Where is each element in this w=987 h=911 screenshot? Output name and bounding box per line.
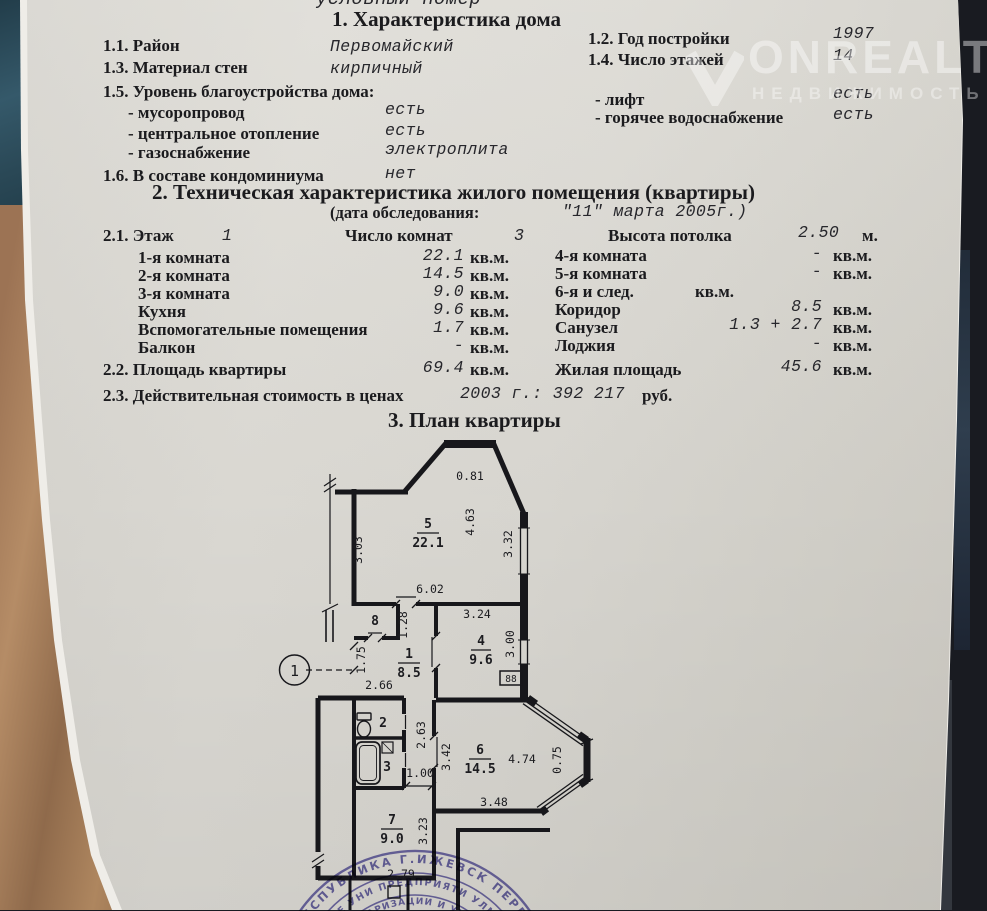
dim-1-28: 1.28 <box>396 611 410 639</box>
dim-3-32: 3.32 <box>501 530 515 558</box>
room2-value: 14.5 <box>372 264 464 283</box>
dim-6-02: 6.02 <box>416 582 444 596</box>
dim-3-03: 3.03 <box>351 536 365 564</box>
corridor-value: 8.5 <box>726 297 822 316</box>
radiator-label: 88 <box>505 674 517 685</box>
watermark-brand: ONREALT <box>748 30 987 84</box>
room1-number: 1 <box>405 647 413 662</box>
floor-value: 1 <box>222 226 232 245</box>
room1-label: 1-я комната <box>138 248 230 268</box>
room5-area: 22.1 <box>412 536 443 551</box>
room6plus-label: 6-я и след. <box>555 282 634 302</box>
field-walls-value: кирпичный <box>330 59 423 78</box>
ceiling-unit: м. <box>862 226 878 246</box>
living-area-label: Жилая площадь <box>555 360 681 380</box>
room1-unit: кв.м. <box>470 248 509 268</box>
kitchen-unit: кв.м. <box>470 302 509 322</box>
kitchen-value: 9.6 <box>372 300 464 319</box>
room5-label: 5-я комната <box>555 264 647 284</box>
room6-area: 14.5 <box>464 762 495 777</box>
field-chute-value: есть <box>385 100 426 119</box>
total-area-label: 2.2. Площадь квартиры <box>103 360 286 380</box>
dim-3-00: 3.00 <box>503 630 517 658</box>
watermark: ONREALT НЕДВИЖИМОСТЬ <box>686 22 986 112</box>
room4-area: 9.6 <box>469 653 493 668</box>
room2-number: 2 <box>379 716 387 731</box>
field-district-label: 1.1. Район <box>103 36 180 56</box>
aux-label: Вспомогательные помещения <box>138 320 368 340</box>
room4-label: 4-я комната <box>555 246 647 266</box>
total-area-unit: кв.м. <box>470 360 509 380</box>
field-heating-value: есть <box>385 121 426 140</box>
cost-unit: руб. <box>642 386 672 406</box>
room4-number: 4 <box>477 634 485 649</box>
field-amenities-label: 1.5. Уровень благоустройства дома: <box>103 82 374 102</box>
corridor-label: Коридор <box>555 300 621 320</box>
room3-number: 3 <box>383 760 391 775</box>
toilet-bowl-icon <box>358 721 371 737</box>
room5-number: 5 <box>424 517 432 532</box>
balcony-unit: кв.м. <box>470 338 509 358</box>
dim-2-63: 2.63 <box>414 721 428 749</box>
living-area-value: 45.6 <box>726 357 822 376</box>
section3-title: 3. План квартиры <box>388 408 561 433</box>
sanuzel-value: 1.3 + 2.7 <box>700 315 822 334</box>
room2-label: 2-я комната <box>138 266 230 286</box>
room6-number: 6 <box>476 743 484 758</box>
room1-area: 8.5 <box>397 666 420 681</box>
total-area-value: 69.4 <box>372 358 464 377</box>
kitchen-label: Кухня <box>138 302 186 322</box>
dim-0-81: 0.81 <box>456 469 484 483</box>
toilet-tank-icon <box>357 713 371 720</box>
room4-value: - <box>726 244 822 263</box>
section1-title: 1. Характеристика дома <box>332 7 561 32</box>
aux-value: 1.7 <box>372 318 464 337</box>
rooms-count-label: Число комнат <box>345 226 453 246</box>
plan-walls <box>306 442 588 910</box>
sanuzel-label: Санузел <box>555 318 618 338</box>
loggia-label: Лоджия <box>555 336 615 356</box>
room2-unit: кв.м. <box>470 266 509 286</box>
aux-unit: кв.м. <box>470 320 509 340</box>
survey-date-label: (дата обследования: <box>330 203 479 223</box>
room7-number: 7 <box>388 813 396 828</box>
dim-1-00: 1.00 <box>406 766 434 780</box>
floor-label: 2.1. Этаж <box>103 226 174 246</box>
axis-number: 1 <box>290 662 299 680</box>
field-lift-label: - лифт <box>595 90 644 110</box>
dim-3-24: 3.24 <box>463 607 491 621</box>
watermark-chevron-icon <box>686 50 744 106</box>
room5-unit: кв.м. <box>833 264 872 284</box>
room1-value: 22.1 <box>372 246 464 265</box>
field-chute-label: - мусоропровод <box>128 103 244 123</box>
sanuzel-unit: кв.м. <box>833 318 872 338</box>
field-gas-value: электроплита <box>385 140 509 159</box>
loggia-unit: кв.м. <box>833 336 872 356</box>
dim-2-66: 2.66 <box>365 678 393 692</box>
room4-unit: кв.м. <box>833 246 872 266</box>
plan-axis-marker: 1 <box>280 655 310 685</box>
survey-date-value: "11" марта 2005г.) <box>562 202 747 221</box>
field-heating-label: - центральное отопление <box>128 124 319 144</box>
dim-4-74: 4.74 <box>508 752 536 766</box>
ceiling-value: 2.50 <box>798 223 839 242</box>
room3-label: 3-я комната <box>138 284 230 304</box>
field-gas-label: - газоснабжение <box>128 143 250 163</box>
dim-3-48: 3.48 <box>480 795 508 809</box>
field-district-value: Первомайский <box>330 37 454 56</box>
dim-3-42: 3.42 <box>439 743 453 771</box>
room8-number: 8 <box>371 614 379 629</box>
rooms-count-value: 3 <box>514 226 524 245</box>
loggia-value: - <box>726 334 822 353</box>
room5-value: - <box>726 262 822 281</box>
room3-unit: кв.м. <box>470 284 509 304</box>
watermark-subtitle: НЕДВИЖИМОСТЬ <box>752 84 986 104</box>
ceiling-label: Высота потолка <box>608 226 732 246</box>
cost-label: 2.3. Действительная стоимость в ценах <box>103 386 404 406</box>
floor-plan: 88 1 5 22.1 4 9.6 1 8.5 6 14.5 7 9.0 8 2… <box>278 434 708 910</box>
balcony-value: - <box>372 336 464 355</box>
round-stamp: АЯ РЕСПУБЛИКА Г.ИЖЕВСК ПЕРВО ЕННОЕ УНИ П… <box>250 841 580 911</box>
plan-dimension-labels: 0.81 4.63 3.03 3.32 6.02 3.24 1.28 3.00 … <box>351 469 564 881</box>
dim-1-75: 1.75 <box>354 646 368 674</box>
living-area-unit: кв.м. <box>833 360 872 380</box>
room3-value: 9.0 <box>372 282 464 301</box>
dim-4-63: 4.63 <box>463 508 477 536</box>
dim-0-75: 0.75 <box>550 746 564 774</box>
balcony-label: Балкон <box>138 338 195 358</box>
cost-value: 2003 г.: 392 217 <box>460 384 625 403</box>
corridor-unit: кв.м. <box>833 300 872 320</box>
field-walls-label: 1.3. Материал стен <box>103 58 248 78</box>
